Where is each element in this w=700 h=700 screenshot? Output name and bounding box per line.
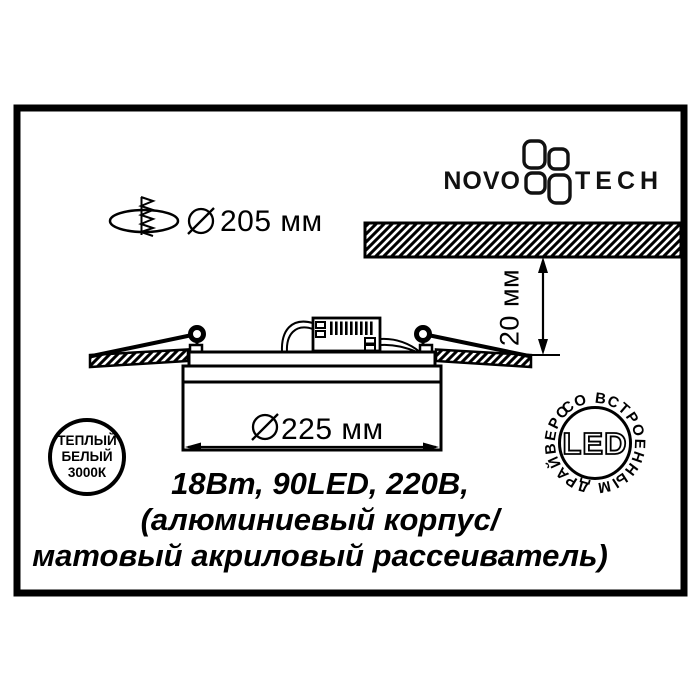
stamp-center-text: LED xyxy=(563,426,628,461)
color-temp-badge: ТЕПЛЫЙ БЕЛЫЙ 3000К xyxy=(48,418,126,496)
spec-line-diffuser: матовый акриловый рассеиватель) xyxy=(13,538,627,574)
trim-ring xyxy=(183,366,441,382)
ceiling-section xyxy=(365,223,681,257)
spec-line-housing: (алюминиевый корпус/ xyxy=(13,502,627,538)
product-spec-sheet: СО ВСТРОЕННЫМ ДРАЙВЕРОМ LED NOVO TECH 20… xyxy=(0,0,700,700)
cutout-hole-icon xyxy=(110,197,178,236)
depth-dimension-arrow xyxy=(527,257,560,355)
recess-depth-label: 20 мм xyxy=(495,266,526,350)
wire-right xyxy=(380,339,420,352)
logo-text-tech: TECH xyxy=(575,168,663,194)
logo-text-novo: NOVO xyxy=(443,168,521,194)
wire-left xyxy=(282,322,313,352)
body-diameter-label: 225 мм xyxy=(281,413,384,447)
novotech-flower-icon xyxy=(524,141,570,203)
diameter-icon xyxy=(188,208,214,234)
driver-box xyxy=(313,318,380,351)
badge-line-1: ТЕПЛЫЙ xyxy=(57,433,116,449)
diagram-canvas: СО ВСТРОЕННЫМ ДРАЙВЕРОМ LED xyxy=(0,0,700,700)
mounting-plate xyxy=(189,352,435,366)
cutout-diameter-label: 205 мм xyxy=(220,205,323,239)
badge-line-3: 3000К xyxy=(68,465,106,481)
badge-line-2: БЕЛЫЙ xyxy=(61,449,112,465)
